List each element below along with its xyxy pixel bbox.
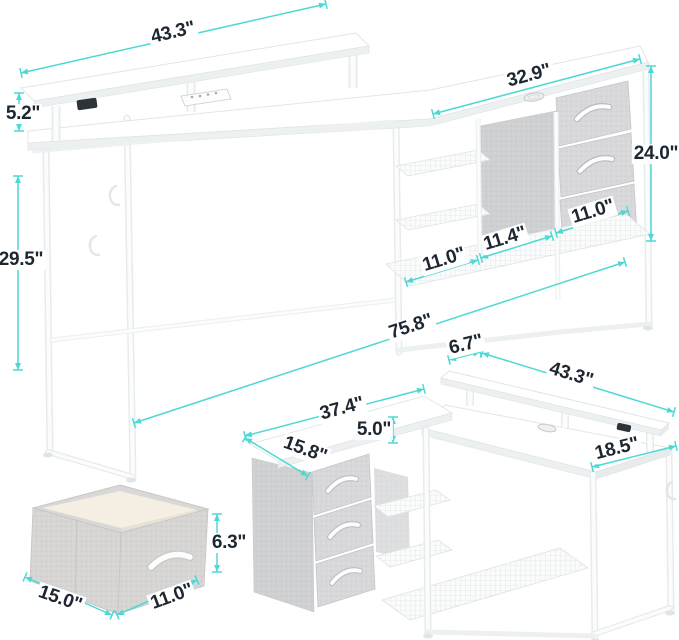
dimension-arrowhead bbox=[134, 418, 142, 424]
dimension-l-shelf-rise bbox=[388, 417, 398, 443]
dimension-l-left-length bbox=[244, 384, 426, 441]
dimension-lines-layer bbox=[0, 0, 679, 640]
dimension-monitor-shelf-length bbox=[20, 0, 327, 78]
dimension-arrowhead bbox=[214, 565, 220, 572]
dimension-bin-depth bbox=[115, 575, 199, 619]
dimension-arrowhead bbox=[15, 176, 21, 183]
dimension-arrowhead bbox=[406, 277, 414, 283]
dimension-hutch-top-length bbox=[432, 54, 642, 119]
dimension-shelf-depth-right bbox=[555, 206, 630, 238]
dimension-arrowhead bbox=[556, 228, 564, 234]
dimension-arrowhead bbox=[16, 124, 22, 131]
dimension-arrowhead bbox=[666, 407, 674, 413]
dimension-bin-length bbox=[23, 572, 114, 619]
dimension-arrowhead bbox=[648, 66, 654, 73]
dimension-arrowhead bbox=[390, 417, 396, 424]
dimension-desk-height bbox=[13, 176, 23, 370]
dimension-arrowhead bbox=[214, 514, 220, 521]
dimension-arrowhead bbox=[617, 261, 625, 267]
dimension-arrowhead bbox=[390, 436, 396, 443]
dimension-monitor-shelf-height bbox=[14, 93, 24, 131]
dimension-arrowhead bbox=[620, 210, 628, 216]
dimension-bin-height bbox=[212, 514, 222, 572]
dimension-l-shelf-depth bbox=[448, 347, 481, 365]
dimension-shelf-depth-middle bbox=[480, 231, 554, 263]
dimension-arrowhead bbox=[470, 259, 478, 265]
dimension-arrowhead bbox=[482, 352, 490, 358]
dimension-arrowhead bbox=[16, 93, 22, 100]
dimension-hutch-height bbox=[646, 66, 656, 241]
dimension-arrowhead bbox=[544, 235, 552, 241]
dimension-arrowhead bbox=[15, 363, 21, 370]
dimension-l-right-length bbox=[481, 348, 676, 417]
dimension-total-length bbox=[132, 257, 626, 428]
dimension-shelf-depth-left bbox=[405, 255, 480, 287]
dimension-arrowhead bbox=[481, 253, 489, 259]
product-dimension-diagram: 43.3"5.2"32.9"24.0"29.5"11.0"11.4"11.0"7… bbox=[0, 0, 679, 640]
dimension-l-left-depth bbox=[242, 434, 310, 481]
dimension-l-right-depth bbox=[591, 441, 677, 472]
dimension-arrowhead bbox=[648, 234, 654, 241]
